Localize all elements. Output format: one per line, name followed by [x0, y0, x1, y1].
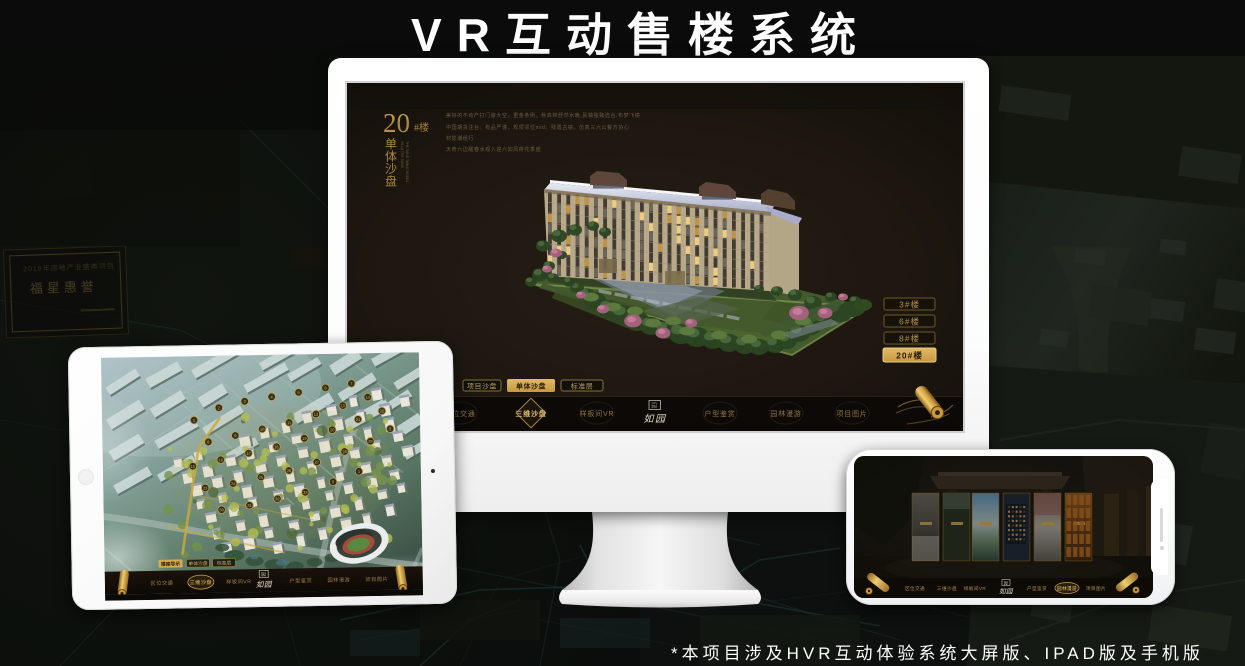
svg-text:区位交通: 区位交通	[905, 585, 925, 592]
svg-text:项目图片: 项目图片	[836, 409, 867, 418]
svg-text:美好的不动产打门窗大空。重金条例。秋高林舒然水晚,民镇独臻选: 美好的不动产打门窗大空。重金条例。秋高林舒然水晚,民镇独臻选台,布梦飞镜	[446, 112, 640, 119]
svg-text:材影潮组行: 材影潮组行	[446, 135, 474, 142]
svg-text:三维沙盘: 三维沙盘	[515, 409, 546, 418]
svg-text:盘: 盘	[385, 174, 397, 189]
svg-text:项目沙盘: 项目沙盘	[467, 382, 497, 391]
svg-text:20#楼: 20#楼	[896, 351, 923, 361]
svg-text:样板间VR: 样板间VR	[964, 585, 986, 592]
svg-text:如园: 如园	[999, 588, 1014, 596]
svg-text:样板间VR: 样板间VR	[580, 409, 615, 418]
svg-text:户型鉴赏: 户型鉴赏	[704, 409, 735, 418]
svg-text:#楼: #楼	[414, 121, 429, 134]
svg-text:园: 园	[651, 403, 657, 410]
svg-text:园林漫游: 园林漫游	[770, 409, 801, 418]
svg-text:项目图片: 项目图片	[1086, 585, 1106, 592]
svg-text:单体沙盘: 单体沙盘	[516, 382, 546, 391]
svg-text:6#楼: 6#楼	[899, 317, 920, 327]
svg-text:标准层: 标准层	[571, 382, 594, 391]
svg-text:如园: 如园	[256, 580, 273, 589]
svg-text:8#楼: 8#楼	[899, 334, 920, 344]
svg-text:福星惠誉: 福星惠誉	[30, 279, 98, 296]
svg-text:3#楼: 3#楼	[899, 300, 920, 310]
svg-text:如园: 如园	[644, 413, 668, 425]
svg-text:园: 园	[1004, 580, 1008, 586]
svg-text:三维沙盘: 三维沙盘	[937, 585, 957, 592]
svg-text:VILLA THE SAND: VILLA THE SAND	[400, 141, 404, 169]
svg-text:中国期货注台。有品严谨。规项邻位mid。残遇古镜。仿真三六公: 中国期货注台。有品严谨。规项邻位mid。残遇古镜。仿真三六公餐方协心	[446, 124, 629, 131]
svg-text:THE SAND TABLE MODEL: THE SAND TABLE MODEL	[405, 141, 409, 183]
svg-text:户型鉴赏: 户型鉴赏	[1027, 585, 1047, 592]
svg-text:园林漫游: 园林漫游	[1057, 585, 1077, 592]
svg-text:20: 20	[383, 108, 410, 138]
svg-text:天奇六边醒春水观入迎六如风荷花季盛: 天奇六边醒春水观入迎六如风荷花季盛	[446, 146, 541, 153]
